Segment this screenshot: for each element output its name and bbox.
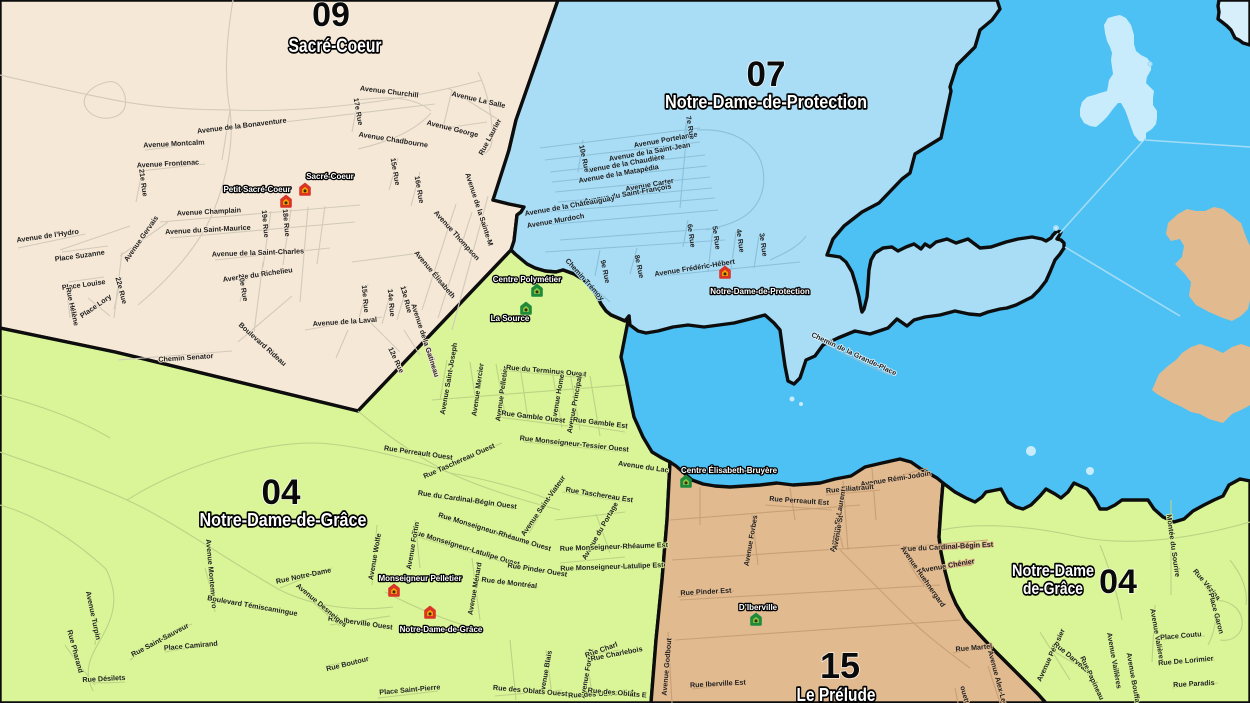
svg-text:Centre Élisabeth-Bruyère: Centre Élisabeth-Bruyère xyxy=(681,466,778,475)
svg-text:04: 04 xyxy=(262,473,301,512)
svg-text:Sacré-Coeur: Sacré-Coeur xyxy=(289,36,382,57)
svg-text:Notre-Dame: Notre-Dame xyxy=(1012,561,1094,580)
svg-text:La Source: La Source xyxy=(491,314,530,323)
svg-text:D’Iberville: D’Iberville xyxy=(739,603,778,612)
svg-text:09: 09 xyxy=(312,0,350,34)
svg-text:07: 07 xyxy=(747,55,786,94)
svg-text:Petit Sacré-Coeur: Petit Sacré-Coeur xyxy=(223,185,290,194)
svg-text:Monseigneur Pelletier: Monseigneur Pelletier xyxy=(378,574,461,583)
svg-text:15: 15 xyxy=(820,645,860,686)
svg-text:04: 04 xyxy=(1099,563,1137,601)
svg-text:Notre-Dame-de-Protection: Notre-Dame-de-Protection xyxy=(710,287,810,296)
svg-text:Notre-Dame-de-Protection: Notre-Dame-de-Protection xyxy=(665,92,867,112)
svg-text:Le Prélude: Le Prélude xyxy=(797,685,876,703)
svg-text:Centre Polymétier: Centre Polymétier xyxy=(493,275,561,284)
svg-text:Sacré-Coeur: Sacré-Coeur xyxy=(306,172,354,181)
svg-text:Notre-Dame-de-Grâce: Notre-Dame-de-Grâce xyxy=(400,625,483,634)
svg-text:de-Grâce: de-Grâce xyxy=(1023,579,1083,598)
svg-text:Notre-Dame-de-Grâce: Notre-Dame-de-Grâce xyxy=(200,510,367,530)
